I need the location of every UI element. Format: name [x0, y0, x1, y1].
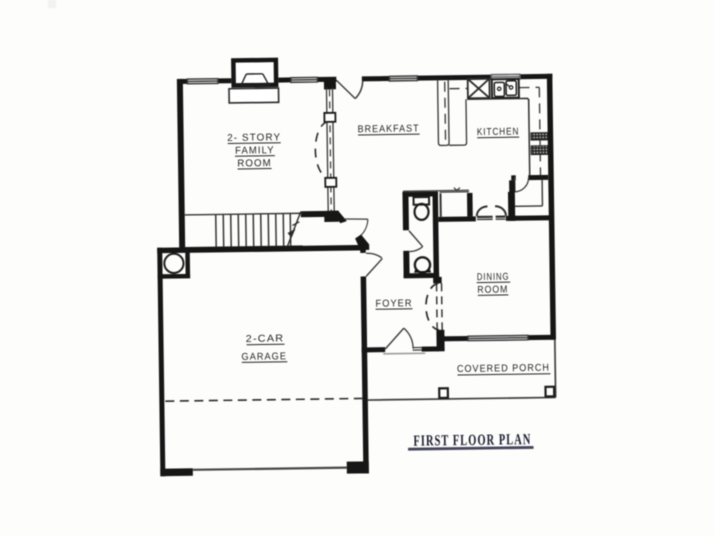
svg-text:DINING: DINING [477, 272, 510, 283]
svg-text:2- STORY: 2- STORY [227, 132, 281, 144]
svg-text:FOYER: FOYER [375, 298, 412, 310]
svg-text:FAMILY: FAMILY [235, 145, 275, 157]
svg-text:GARAGE: GARAGE [241, 351, 287, 363]
svg-text:ROOM: ROOM [477, 284, 508, 295]
svg-text:ROOM: ROOM [237, 158, 272, 169]
svg-text:BREAKFAST: BREAKFAST [357, 123, 419, 135]
svg-text:2-CAR: 2-CAR [246, 333, 285, 345]
svg-text:COVERED PORCH: COVERED PORCH [457, 363, 550, 375]
svg-text:KITCHEN: KITCHEN [477, 127, 520, 139]
